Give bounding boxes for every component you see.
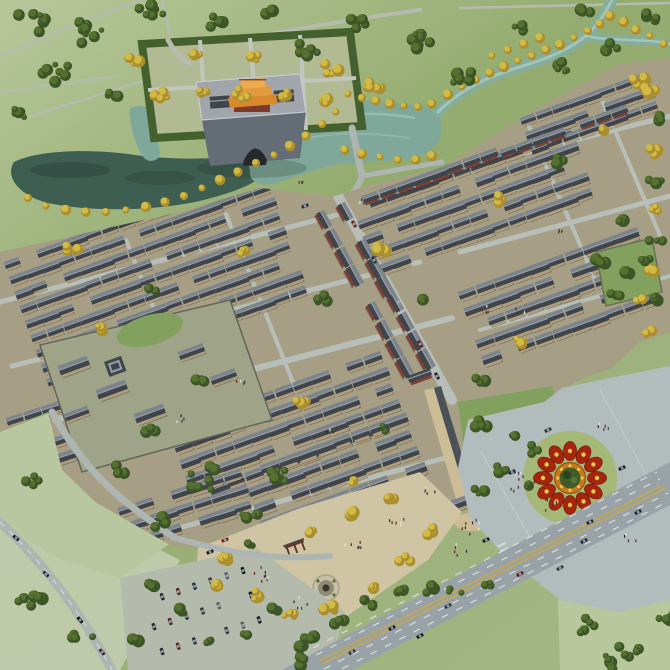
- tree: [645, 236, 654, 245]
- riverbank-tree: [371, 96, 380, 105]
- gingko-tree: [282, 93, 289, 100]
- riverbank-tree: [499, 62, 510, 73]
- person: [523, 309, 524, 312]
- tree: [251, 512, 257, 518]
- gingko-tree: [348, 480, 355, 487]
- tree: [551, 158, 563, 170]
- person: [476, 519, 477, 522]
- scene-svg: [0, 0, 670, 670]
- gingko-tree: [235, 85, 243, 93]
- riverbank-tree: [301, 131, 310, 140]
- tree: [511, 432, 519, 440]
- riverbank-tree: [285, 141, 296, 152]
- person: [361, 198, 362, 201]
- tree: [380, 423, 386, 429]
- tree: [446, 589, 452, 595]
- riverbank-tree: [180, 192, 188, 200]
- person: [520, 472, 521, 475]
- riverbank-tree: [489, 53, 496, 60]
- gingko-tree: [422, 529, 433, 540]
- tree: [413, 31, 419, 37]
- tree: [512, 24, 518, 30]
- riverbank-tree: [271, 152, 278, 159]
- person: [360, 541, 361, 544]
- riverbank-tree: [377, 154, 384, 161]
- tree: [471, 374, 480, 383]
- gingko-tree: [251, 595, 258, 602]
- person: [517, 311, 518, 314]
- tree: [148, 582, 158, 592]
- person: [265, 574, 266, 577]
- person: [183, 418, 184, 421]
- tree: [34, 26, 45, 37]
- tree: [13, 9, 25, 21]
- tree: [63, 62, 72, 71]
- tree: [586, 619, 594, 627]
- gingko-tree: [237, 250, 245, 258]
- tree: [132, 635, 141, 644]
- parterre-center-trees: [560, 468, 581, 489]
- tree: [478, 422, 487, 431]
- tree: [203, 639, 210, 646]
- flower-petal-center: [544, 462, 548, 466]
- riverbank-tree: [333, 109, 340, 116]
- riverbank-tree: [385, 99, 396, 110]
- tree: [209, 13, 218, 22]
- person: [345, 543, 346, 546]
- tree: [52, 62, 58, 68]
- riverbank-tree: [504, 46, 512, 54]
- person: [478, 528, 479, 531]
- person: [457, 554, 458, 557]
- tree: [458, 590, 464, 596]
- riverbank-tree: [605, 11, 616, 22]
- gingko-tree: [292, 397, 301, 406]
- tree: [361, 597, 368, 604]
- person: [558, 231, 559, 234]
- person: [299, 596, 300, 599]
- flower-petal-center: [541, 476, 545, 480]
- tree: [77, 38, 88, 49]
- person: [301, 181, 302, 184]
- person: [240, 380, 241, 383]
- person: [547, 499, 548, 502]
- tree: [562, 69, 568, 75]
- person: [425, 487, 426, 490]
- gingko-tree: [516, 338, 527, 349]
- flower-petal-center: [591, 462, 595, 466]
- gingko-tree: [638, 294, 648, 304]
- riverbank-tree: [528, 52, 536, 60]
- riverbank-tree: [595, 19, 604, 28]
- person: [462, 527, 463, 530]
- person: [469, 533, 470, 536]
- flower-petal-center: [581, 452, 585, 456]
- tree: [49, 76, 61, 88]
- tree: [455, 74, 465, 84]
- gingko-tree: [286, 609, 294, 617]
- parterre-center-shade: [563, 471, 571, 479]
- tree: [425, 37, 435, 47]
- tree: [656, 615, 663, 622]
- riverbank-tree: [571, 35, 578, 42]
- tree: [105, 89, 113, 97]
- person: [176, 420, 177, 423]
- person: [261, 566, 262, 569]
- gingko-tree: [384, 494, 392, 502]
- tree: [526, 480, 532, 486]
- person: [518, 478, 519, 481]
- riverbank-tree: [215, 175, 226, 186]
- person: [556, 501, 557, 504]
- tree: [554, 65, 561, 72]
- riverbank-tree: [160, 197, 169, 206]
- tree: [596, 258, 607, 269]
- tree: [633, 647, 641, 655]
- tree: [426, 580, 437, 591]
- riverbank-tree: [43, 203, 50, 210]
- flower-dot: [556, 476, 559, 479]
- person: [299, 181, 300, 184]
- tree: [60, 70, 71, 81]
- tree: [89, 633, 96, 640]
- riverbank-tree: [619, 17, 630, 28]
- flower-petal-center: [581, 499, 585, 503]
- person: [605, 425, 606, 428]
- tree: [209, 464, 221, 476]
- gingko-tree: [347, 506, 360, 519]
- person: [329, 429, 330, 432]
- riverbank-tree: [519, 39, 528, 48]
- tree: [80, 23, 91, 34]
- tree: [174, 603, 186, 615]
- tree: [194, 482, 203, 491]
- riverbank-tree: [233, 167, 242, 176]
- person: [389, 519, 390, 522]
- tree: [605, 656, 612, 663]
- gingko-tree: [372, 244, 385, 257]
- gingko-tree: [365, 83, 375, 93]
- gingko-tree: [62, 242, 71, 251]
- riverbank-tree: [535, 33, 546, 44]
- aerial-rendering: [0, 0, 670, 670]
- tree: [654, 238, 660, 244]
- tree: [605, 38, 616, 49]
- flower-petal-center: [595, 476, 599, 480]
- gingko-tree: [305, 528, 316, 539]
- person: [267, 576, 268, 579]
- tree: [657, 116, 665, 124]
- riverbank-tree: [81, 207, 90, 216]
- tree: [641, 8, 652, 19]
- person: [513, 490, 514, 493]
- tree: [135, 4, 145, 14]
- tree: [517, 20, 528, 31]
- tree: [313, 295, 322, 304]
- gingko-tree: [646, 144, 656, 154]
- flower-petal-center: [554, 452, 558, 456]
- person: [518, 486, 519, 489]
- gingko-tree: [238, 96, 245, 103]
- tree: [71, 634, 80, 643]
- tree: [614, 642, 624, 652]
- flower-petal-center: [568, 449, 572, 453]
- riverbank-tree: [357, 149, 368, 160]
- tree: [28, 9, 39, 20]
- gingko-tree: [188, 49, 198, 59]
- tree: [346, 14, 357, 25]
- person: [608, 427, 609, 430]
- tree: [534, 446, 542, 454]
- person: [182, 420, 183, 423]
- tree: [267, 5, 278, 16]
- riverbank-tree: [252, 159, 260, 167]
- person: [392, 521, 393, 524]
- tree: [395, 586, 405, 596]
- tree: [621, 650, 630, 659]
- riverbank-tree: [414, 103, 422, 111]
- riverbank-tree: [515, 58, 522, 65]
- gate-side-pavilion-west: [209, 95, 232, 109]
- person: [359, 201, 360, 204]
- riverbank-tree: [123, 207, 130, 214]
- tree: [41, 64, 53, 76]
- person: [466, 550, 467, 553]
- gingko-tree: [642, 329, 651, 338]
- person: [301, 607, 302, 610]
- riverbank-tree: [199, 185, 206, 192]
- person: [181, 414, 182, 417]
- riverbank-tree: [340, 145, 349, 154]
- tree: [33, 592, 44, 603]
- person: [534, 481, 535, 484]
- person: [545, 509, 546, 512]
- gingko-tree: [156, 94, 165, 103]
- flower-petal-center: [568, 503, 572, 507]
- person: [254, 572, 255, 575]
- tree: [651, 293, 657, 299]
- person: [236, 380, 237, 383]
- gingko-tree: [599, 126, 606, 133]
- flower-dot: [568, 464, 571, 467]
- gingko-tree: [246, 52, 256, 63]
- tree: [243, 630, 252, 639]
- riverbank-tree: [485, 68, 494, 77]
- person: [327, 431, 328, 434]
- flower-dot: [577, 468, 580, 471]
- tree: [159, 11, 166, 18]
- tree: [162, 519, 171, 528]
- person: [603, 428, 604, 431]
- gingko-tree: [652, 203, 659, 210]
- tree: [207, 486, 214, 493]
- tree: [30, 472, 38, 480]
- person: [486, 305, 487, 308]
- tree: [144, 284, 153, 293]
- person: [628, 539, 629, 542]
- tree: [466, 67, 477, 78]
- tree: [113, 468, 123, 478]
- person: [486, 311, 487, 314]
- person: [465, 522, 466, 525]
- flower-dot: [560, 485, 563, 488]
- tree: [266, 602, 278, 614]
- person: [515, 307, 516, 310]
- gingko-tree: [320, 59, 331, 70]
- person: [599, 423, 600, 426]
- tree: [419, 298, 427, 306]
- flower-dot: [568, 488, 571, 491]
- riverbank-tree: [61, 205, 72, 216]
- tree: [244, 539, 252, 547]
- person: [456, 543, 457, 546]
- person: [243, 382, 244, 385]
- person: [555, 507, 556, 510]
- person: [472, 522, 473, 525]
- gingko-tree: [642, 86, 655, 99]
- person: [293, 600, 294, 603]
- tree: [615, 217, 623, 225]
- riverbank-tree: [345, 91, 352, 98]
- tree: [411, 42, 423, 54]
- person: [545, 498, 546, 501]
- tree: [269, 472, 282, 485]
- riverbank-tree: [584, 27, 592, 35]
- person: [297, 607, 298, 610]
- parterre-center-shade: [571, 477, 577, 483]
- riverbank-tree: [411, 155, 420, 164]
- person: [553, 504, 554, 507]
- tree: [297, 645, 303, 651]
- person: [396, 522, 397, 525]
- person: [598, 425, 599, 428]
- person: [624, 535, 625, 538]
- gingko-tree: [494, 191, 504, 201]
- person: [482, 308, 483, 311]
- tree: [615, 291, 625, 301]
- gingko-tree: [629, 74, 639, 84]
- person: [524, 311, 525, 314]
- tree: [143, 11, 151, 19]
- flower-dot: [577, 485, 580, 488]
- gingko-tree: [252, 588, 260, 596]
- tree: [652, 14, 661, 23]
- tree: [577, 629, 585, 637]
- person: [479, 522, 480, 525]
- gingko-tree: [214, 582, 220, 588]
- riverbank-tree: [401, 103, 408, 110]
- person: [554, 502, 555, 505]
- tree: [638, 256, 646, 264]
- gingko-tree: [318, 604, 330, 616]
- gingko-tree: [124, 53, 134, 63]
- tree: [11, 106, 18, 113]
- riverbank-tree: [24, 194, 32, 202]
- tree: [150, 522, 160, 532]
- person: [358, 546, 359, 549]
- gingko-tree: [322, 100, 329, 107]
- tree: [619, 266, 632, 279]
- tree: [368, 601, 378, 611]
- flower-petal-center: [591, 489, 595, 493]
- riverbank-tree: [631, 25, 640, 34]
- tree: [21, 476, 31, 486]
- tree: [334, 616, 344, 626]
- person: [427, 492, 428, 495]
- person: [333, 431, 334, 434]
- tree: [89, 31, 100, 42]
- person: [515, 473, 516, 476]
- person: [511, 488, 512, 491]
- person: [561, 230, 562, 233]
- tree: [241, 512, 253, 524]
- person: [363, 202, 364, 205]
- tree: [113, 91, 124, 102]
- person: [403, 518, 404, 521]
- gingko-tree: [369, 584, 376, 591]
- tree: [204, 476, 214, 486]
- gingko-tree: [95, 323, 101, 329]
- tree: [357, 14, 368, 25]
- flower-dot: [580, 476, 583, 479]
- gingko-tree: [72, 244, 83, 255]
- gingko-tree: [196, 87, 203, 94]
- person: [401, 524, 402, 527]
- riverbank-tree: [660, 40, 668, 48]
- riverbank-tree: [427, 151, 438, 162]
- riverbank-tree: [318, 120, 326, 128]
- person: [465, 526, 466, 529]
- person: [518, 472, 519, 475]
- person: [434, 491, 435, 494]
- riverbank-tree: [443, 90, 454, 101]
- tree: [481, 581, 489, 589]
- tree: [650, 177, 662, 189]
- gingko-tree: [401, 552, 410, 561]
- gingko-tree: [222, 553, 230, 561]
- riverbank-tree: [647, 33, 654, 40]
- person: [454, 550, 455, 553]
- person: [326, 431, 327, 434]
- tree: [40, 17, 49, 26]
- person: [351, 543, 352, 546]
- riverbank-tree: [555, 40, 566, 51]
- person: [264, 575, 265, 578]
- tree: [295, 39, 305, 49]
- riverbank-tree: [358, 94, 366, 102]
- gingko-tree: [649, 266, 661, 278]
- tree: [301, 50, 313, 62]
- tree: [603, 50, 609, 56]
- riverbank-tree: [141, 202, 152, 213]
- person: [265, 571, 266, 574]
- gingko-tree: [329, 71, 335, 77]
- tree: [299, 654, 309, 664]
- person: [307, 603, 308, 606]
- flower-dot: [560, 468, 563, 471]
- riverbank-tree: [102, 208, 110, 216]
- riverbank-tree: [541, 45, 550, 54]
- person: [360, 546, 361, 549]
- person: [357, 546, 358, 549]
- person: [635, 540, 636, 543]
- tree: [606, 289, 615, 298]
- tree: [577, 6, 587, 16]
- tree: [99, 27, 105, 33]
- tree: [281, 467, 289, 475]
- person: [455, 546, 456, 549]
- person: [522, 475, 523, 478]
